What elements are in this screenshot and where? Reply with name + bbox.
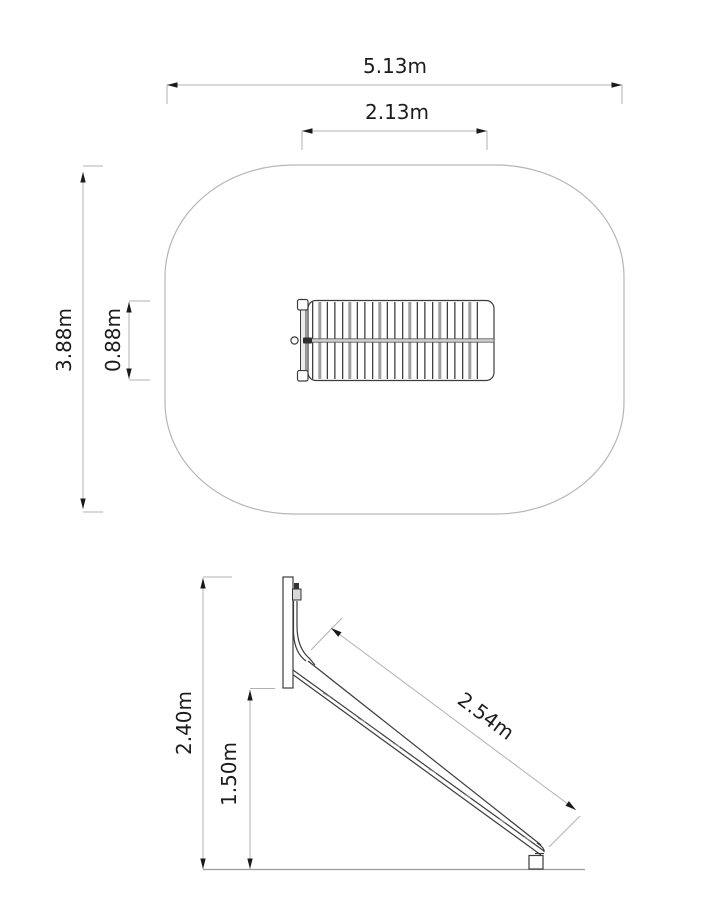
arrowhead-icon: [302, 128, 313, 133]
safety-zone-width-label: 5.13m: [363, 54, 427, 78]
center-fixing: [291, 337, 298, 344]
slide-rail-mid: [293, 670, 544, 851]
dim-equipment-depth: 0.88m: [101, 301, 150, 380]
equipment-depth-label: 0.88m: [101, 308, 125, 372]
arrowhead-icon: [200, 578, 205, 589]
arrowhead-icon: [167, 82, 178, 87]
dim-equipment-width: 2.13m: [302, 100, 487, 150]
arrowhead-icon: [80, 172, 85, 183]
extension-line: [549, 816, 580, 847]
arrowhead-icon: [247, 859, 252, 870]
dim-platform-height: 1.50m: [217, 689, 275, 870]
arrowhead-icon: [331, 628, 342, 637]
slide-length-label: 2.54m: [453, 687, 519, 744]
center-bolt: [303, 338, 312, 344]
slide-technical-drawing: 5.13m 2.13m 3.88m: [0, 0, 710, 919]
platform-wall: [283, 577, 293, 688]
safety-zone-depth-label: 3.88m: [52, 308, 76, 372]
arrowhead-icon: [612, 82, 623, 87]
post-top: [298, 300, 309, 311]
post-bottom: [298, 371, 309, 382]
foot-block: [529, 856, 543, 870]
overall-height-label: 2.40m: [172, 691, 196, 755]
drawing-svg: 5.13m 2.13m 3.88m: [0, 0, 710, 919]
plan-view: 5.13m 2.13m 3.88m: [52, 54, 624, 514]
dim-slide-length: 2.54m: [311, 618, 580, 847]
dim-overall-height: 2.40m: [172, 577, 232, 869]
arrowhead-icon: [126, 369, 131, 380]
side-view: 2.40m 1.50m 2.54m: [172, 577, 585, 870]
platform-height-label: 1.50m: [217, 742, 241, 806]
arrowhead-icon: [477, 128, 488, 133]
arrowhead-icon: [247, 690, 252, 701]
arrowhead-icon: [200, 859, 205, 870]
entry-bolt-block: [293, 589, 302, 600]
dim-safety-zone-depth: 3.88m: [52, 166, 103, 512]
slide-plan: [291, 300, 494, 382]
entry-bolt-pin: [294, 583, 299, 589]
equipment-width-label: 2.13m: [365, 100, 429, 124]
dim-line: [331, 628, 576, 810]
slide-rail-bottom: [294, 675, 542, 855]
slide-rail-top: [308, 661, 541, 845]
arrowhead-icon: [80, 499, 85, 510]
slide-center-rail: [306, 339, 494, 342]
arrowhead-icon: [126, 302, 131, 313]
arrowhead-icon: [566, 801, 577, 810]
dim-safety-zone-width: 5.13m: [167, 54, 622, 104]
